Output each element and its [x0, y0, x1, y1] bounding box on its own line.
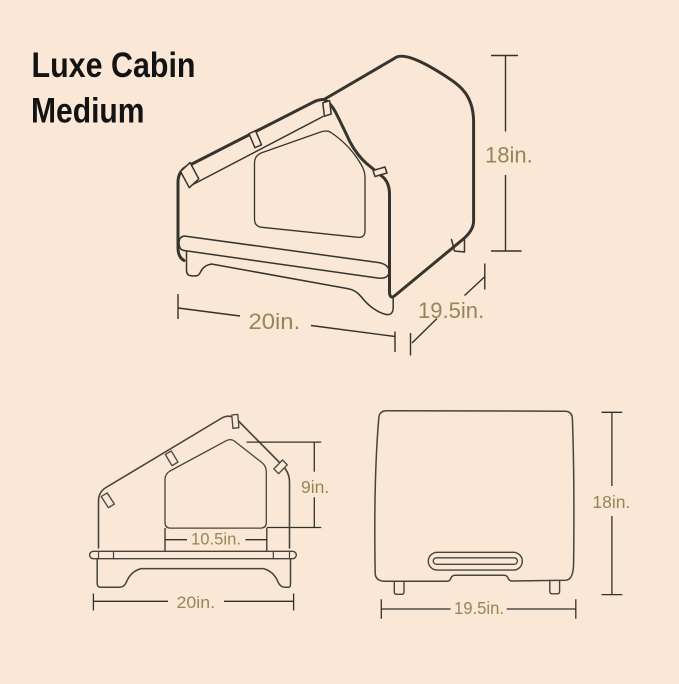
- svg-text:Medium: Medium: [31, 92, 145, 131]
- svg-text:19.5in.: 19.5in.: [454, 598, 504, 618]
- svg-text:20in.: 20in.: [177, 594, 216, 612]
- svg-text:18in.: 18in.: [485, 143, 533, 168]
- svg-text:Luxe Cabin: Luxe Cabin: [32, 46, 196, 85]
- svg-text:20in.: 20in.: [249, 309, 301, 334]
- svg-text:19.5in.: 19.5in.: [418, 298, 484, 323]
- svg-text:18in.: 18in.: [592, 492, 630, 512]
- svg-text:10.5in.: 10.5in.: [191, 530, 241, 548]
- svg-text:9in.: 9in.: [301, 477, 329, 497]
